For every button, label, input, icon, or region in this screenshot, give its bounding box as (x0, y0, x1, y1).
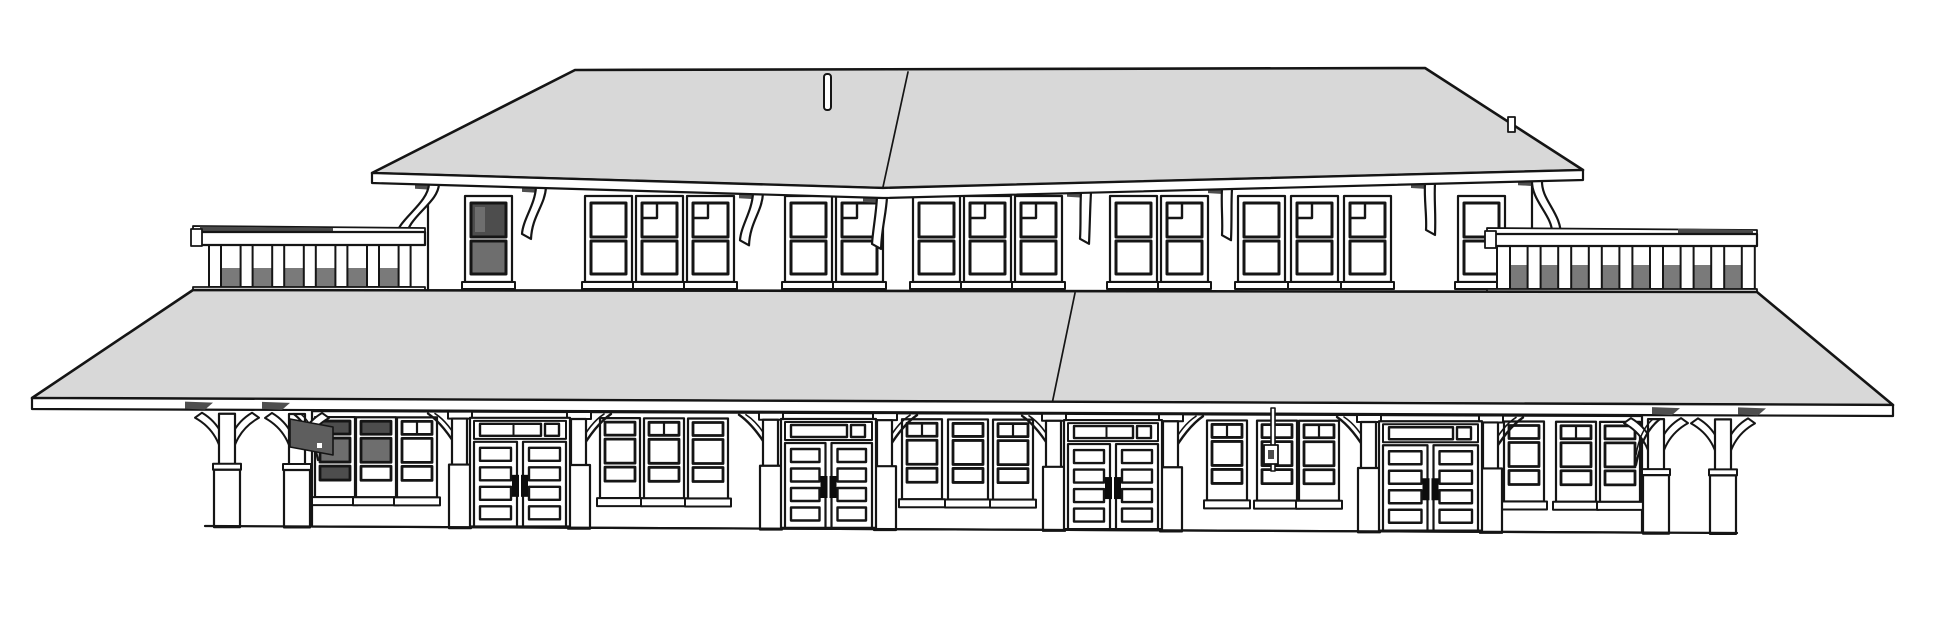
upper-window (582, 196, 635, 289)
upper-window (1235, 196, 1288, 289)
window-sill (910, 282, 963, 289)
upper-window (1012, 196, 1065, 289)
door-panel (529, 487, 560, 500)
baluster-gap-shadow (1510, 265, 1528, 289)
upper-window (1341, 196, 1394, 289)
building (32, 68, 1893, 534)
double-door (1379, 421, 1482, 530)
pilaster-base (760, 466, 782, 530)
window-sill (899, 499, 945, 507)
door-panel (480, 487, 511, 500)
rail-end-post (1485, 231, 1496, 248)
door-panel (1440, 490, 1473, 503)
lower-window (1501, 422, 1547, 510)
double-door (781, 419, 876, 528)
column-shaft (1715, 419, 1731, 471)
door-handle (821, 476, 828, 498)
depot-elevation-canvas (0, 0, 1946, 617)
eave-bracket (1080, 192, 1091, 244)
window-sill (353, 497, 399, 505)
window-sill (990, 500, 1036, 508)
door-panel (791, 468, 820, 481)
baluster (335, 245, 347, 287)
upper-window (1107, 196, 1160, 289)
door-panel (838, 488, 867, 501)
window-sill (945, 499, 991, 507)
door-panel (480, 467, 511, 480)
window-sill (1341, 282, 1394, 289)
door-panel (1122, 509, 1152, 522)
window-sill (633, 282, 686, 289)
window-sill (1158, 282, 1211, 289)
double-door (1064, 420, 1162, 529)
baluster (1711, 246, 1724, 289)
baluster (209, 245, 221, 287)
baluster (272, 245, 284, 287)
lower-window (1296, 421, 1342, 509)
baluster-gap-shadow (1663, 265, 1681, 289)
baluster (1650, 246, 1663, 289)
window-sill (1597, 502, 1643, 510)
baluster-gap-shadow (1632, 265, 1650, 289)
door-panel (1122, 470, 1152, 483)
canopy-column (1691, 418, 1755, 534)
door-panel (791, 507, 820, 520)
baluster-gap-shadow (1694, 265, 1712, 289)
canopy-column (195, 413, 259, 527)
pilaster-shaft (571, 419, 586, 467)
sign-bolt (317, 443, 322, 448)
window-sill (1254, 501, 1300, 509)
door-panel (1440, 451, 1473, 464)
baluster-gap-shadow (347, 268, 367, 287)
lower-window (990, 420, 1036, 508)
window-sill (1288, 282, 1341, 289)
pilaster-base (449, 465, 471, 529)
door-panel (1389, 510, 1422, 523)
window-sill (582, 282, 635, 289)
upper-window (1158, 196, 1211, 289)
baluster (1497, 246, 1510, 289)
door-panel (480, 506, 511, 519)
window-sill (684, 282, 737, 289)
rail-front (1487, 234, 1757, 246)
door-panel (1074, 489, 1104, 502)
eave-bracket (1425, 183, 1435, 235)
baluster (1528, 246, 1541, 289)
lower-window (945, 419, 991, 507)
window-sill (1012, 282, 1065, 289)
rail-end-post (191, 229, 202, 246)
door-panel (1122, 450, 1152, 463)
window-sill (685, 498, 731, 506)
lower-window (394, 417, 440, 505)
upper-window (684, 196, 737, 289)
baluster (1742, 246, 1755, 289)
door-handle (1423, 478, 1430, 500)
column-base (1710, 475, 1736, 534)
window-sill (641, 498, 687, 506)
door-panel (838, 449, 867, 462)
pilaster-base (1043, 467, 1065, 531)
upper-window (1288, 196, 1341, 289)
upper-hip-roof (372, 68, 1583, 198)
upper-window (910, 196, 963, 289)
door-panel (1074, 509, 1104, 522)
window-sill (597, 498, 643, 506)
lower-window (1204, 420, 1250, 508)
standpipe-box-shade (1268, 450, 1274, 459)
baluster (1681, 246, 1694, 289)
platform-canopy (32, 290, 1893, 416)
door-panel (1440, 510, 1473, 523)
door-panel (791, 449, 820, 462)
upper-window-dark (462, 196, 515, 289)
window-sill (782, 282, 835, 289)
door-panel (1389, 471, 1422, 484)
baluster-gap-shadow (1602, 265, 1620, 289)
pilaster-shaft (1046, 421, 1061, 469)
door-panel (838, 468, 867, 481)
upper-window (782, 196, 835, 289)
window-sill (1296, 501, 1342, 509)
door-panel (1389, 451, 1422, 464)
door-panel (1440, 471, 1473, 484)
pilaster-shaft (452, 419, 467, 467)
window-sill (1204, 500, 1250, 508)
window-sill (1553, 502, 1599, 510)
pilaster-base (1480, 468, 1502, 532)
pilaster-base (568, 465, 590, 529)
door-panel (1074, 450, 1104, 463)
baluster (367, 245, 379, 287)
baluster-gap-shadow (284, 268, 304, 287)
upper-window (961, 196, 1014, 289)
lower-window (899, 419, 945, 507)
door-handle (830, 476, 837, 498)
eave-bracket (1222, 188, 1232, 240)
door-panel (480, 448, 511, 461)
pilaster-base (874, 466, 896, 530)
door-handle (1114, 477, 1121, 499)
pilaster-base (1160, 467, 1182, 531)
baluster-gap-shadow (253, 268, 273, 287)
pilaster-shaft (763, 420, 778, 468)
baluster (1558, 246, 1571, 289)
lower-window-dark (353, 417, 399, 505)
door-panel (529, 448, 560, 461)
rail-front (193, 232, 425, 245)
double-door (470, 418, 570, 527)
baluster (241, 245, 253, 287)
baluster (1589, 246, 1602, 289)
column-shaft (1648, 419, 1664, 471)
door-handle (521, 475, 528, 497)
column-base (1643, 475, 1669, 534)
column-base (214, 470, 240, 527)
pilaster-shaft (1361, 422, 1376, 470)
lower-window (597, 418, 643, 506)
depot-3d-rendering (0, 0, 1946, 617)
baluster-gap-shadow (1724, 265, 1742, 289)
canopy-surface (32, 290, 1893, 405)
window-sill (1235, 282, 1288, 289)
window-sill (1107, 282, 1160, 289)
column-base (284, 470, 310, 527)
baluster-gap-shadow (1571, 265, 1589, 289)
left-balustrade (191, 226, 425, 292)
pilaster-shaft (877, 420, 892, 468)
window-sill (961, 282, 1014, 289)
lower-window (1553, 422, 1599, 510)
baluster-gap-shadow (221, 268, 241, 287)
baluster-gap-shadow (316, 268, 336, 287)
baluster-gap-shadow (379, 268, 399, 287)
lower-window (685, 418, 731, 506)
door-panel (529, 506, 560, 519)
baluster (1619, 246, 1632, 289)
door-panel (529, 467, 560, 480)
door-handle (1105, 477, 1112, 499)
clerestory-windows (462, 196, 1508, 289)
door-panel (838, 507, 867, 520)
baluster (304, 245, 316, 287)
door-handle (1432, 478, 1439, 500)
lower-window (641, 418, 687, 506)
door-handle (512, 475, 519, 497)
window-sill (833, 282, 886, 289)
door-panel (1389, 490, 1422, 503)
window-sill (394, 497, 440, 505)
pilaster-base (1358, 468, 1380, 532)
upper-window (633, 196, 686, 289)
window-sill (312, 497, 358, 505)
pilaster-shaft (1483, 422, 1498, 470)
window-sill (462, 282, 515, 289)
baluster-gap-shadow (1541, 265, 1559, 289)
column-shaft (219, 414, 235, 466)
door-panel (1074, 470, 1104, 483)
roof-vent-pipe (1508, 117, 1515, 132)
door-panel (791, 488, 820, 501)
baluster (399, 245, 411, 287)
roof-finial (824, 74, 831, 110)
door-panel (1122, 489, 1152, 502)
window-sill (1501, 502, 1547, 510)
pilaster-shaft (1163, 421, 1178, 469)
upper-roof-surface (372, 68, 1583, 188)
